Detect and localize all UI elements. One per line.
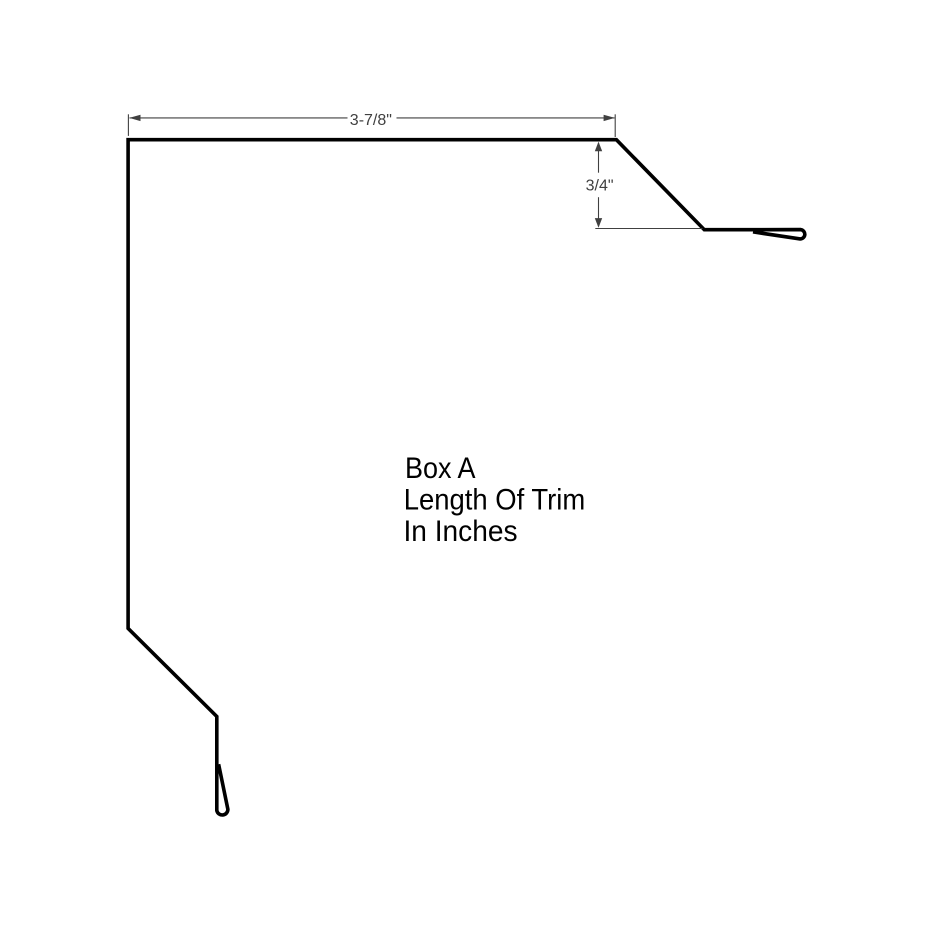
svg-text:In Inches: In Inches	[404, 515, 518, 548]
svg-text:Box A: Box A	[405, 452, 476, 485]
svg-text:3/4": 3/4"	[586, 178, 614, 195]
svg-text:3-7/8": 3-7/8"	[350, 112, 392, 129]
svg-text:Length Of Trim: Length Of Trim	[404, 483, 586, 516]
